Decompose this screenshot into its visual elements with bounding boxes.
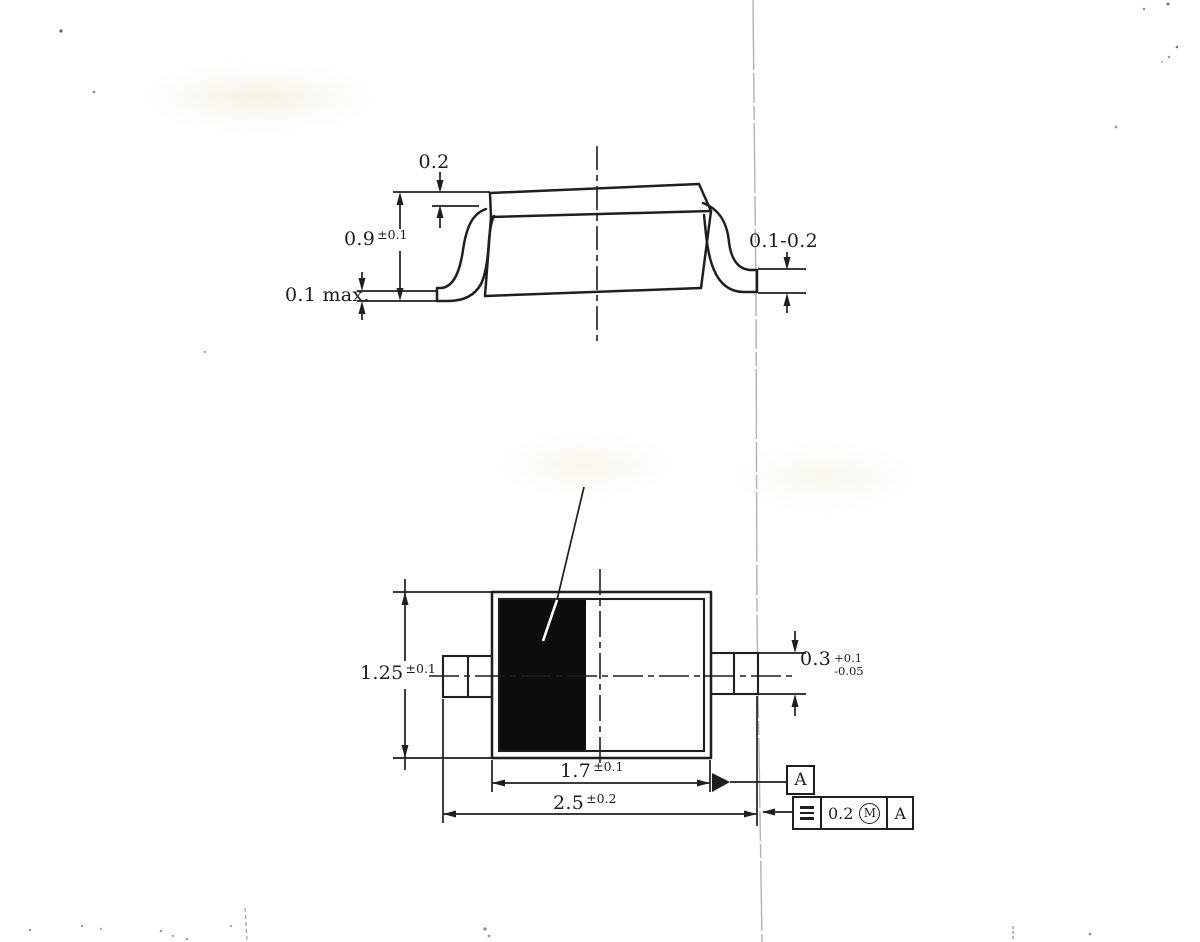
dim-lead-width-tol-plus: +0.1 xyxy=(834,652,864,665)
dim-body-length-value: 1.7 xyxy=(560,760,591,782)
arrowhead xyxy=(402,592,409,605)
arrowhead xyxy=(697,780,710,787)
body-bottom-edge xyxy=(485,288,701,296)
dim-body-length-label: 1.7±0.1 xyxy=(560,759,623,782)
dim-total-length-tol: ±0.2 xyxy=(586,791,616,806)
cathode-band xyxy=(500,600,586,750)
arrowhead xyxy=(443,811,456,818)
dim-standoff-label: 0.1 max. xyxy=(285,284,370,306)
arrowhead xyxy=(784,257,791,270)
scanned-drawing-page: 0.2 0.9±0.1 0.1 max. 0.1-0.2 1.25±0.1 0.… xyxy=(0,0,1200,942)
fcf-modifier-letter: M xyxy=(864,806,876,820)
dim-body-height-label: 0.9±0.1 xyxy=(344,227,407,250)
dim-body-width-value: 1.25 xyxy=(360,662,404,684)
dim-lead-thickness-label: 0.1-0.2 xyxy=(749,230,818,252)
dim-body-height-tol: ±0.1 xyxy=(377,227,407,242)
arrowhead xyxy=(784,293,791,306)
dim-body-height-value: 0.9 xyxy=(344,228,375,250)
body-top-edge xyxy=(490,184,711,211)
dim-total-length-value: 2.5 xyxy=(553,792,584,814)
dim-body-width-tol: ±0.1 xyxy=(406,661,436,676)
side-view xyxy=(357,146,806,344)
arrowhead xyxy=(437,180,444,193)
dim-standoff-value: 0.1 max. xyxy=(285,284,370,306)
feature-control-frame: 0.2 M A xyxy=(792,796,914,830)
dim-body-length-tol: ±0.1 xyxy=(593,759,623,774)
arrowhead xyxy=(792,640,799,653)
dim-step-label: 0.2 xyxy=(417,151,451,173)
arrowhead xyxy=(792,694,799,707)
dim-total-length-label: 2.5±0.2 xyxy=(553,791,616,814)
arrowhead xyxy=(397,192,404,205)
datum-flag-box: A xyxy=(786,765,815,795)
cathode-leader-line xyxy=(557,487,584,600)
datum-flag-letter: A xyxy=(794,770,806,790)
datum-triangle-icon xyxy=(712,773,730,792)
dim-lead-width-value: 0.3 xyxy=(800,648,831,670)
fcf-datum-cell: A xyxy=(886,798,912,828)
material-modifier-icon: M xyxy=(859,803,880,824)
arrowhead xyxy=(744,811,757,818)
arrowhead xyxy=(437,205,444,218)
arrowhead xyxy=(397,288,404,301)
arrowhead xyxy=(762,809,775,816)
ext-line xyxy=(758,653,806,694)
dim-lead-thickness-value: 0.1-0.2 xyxy=(749,230,818,252)
dim-lead-width-label: 0.3+0.1-0.05 xyxy=(800,648,864,677)
fcf-tolerance-cell: 0.2 M xyxy=(820,798,886,828)
dim-lead-width-tols: +0.1-0.05 xyxy=(834,652,864,677)
body-step-edge xyxy=(491,211,711,217)
dim-lead-width-tol-minus: -0.05 xyxy=(834,665,864,678)
fcf-symbol-cell xyxy=(794,798,820,828)
dim-body-width-label: 1.25±0.1 xyxy=(360,661,436,684)
dim-step-value: 0.2 xyxy=(418,151,449,173)
fcf-tolerance-value: 0.2 xyxy=(828,804,853,823)
arrowhead xyxy=(402,745,409,758)
symmetry-icon xyxy=(800,806,814,819)
fcf-datum-letter: A xyxy=(894,804,906,823)
arrowhead xyxy=(492,780,505,787)
